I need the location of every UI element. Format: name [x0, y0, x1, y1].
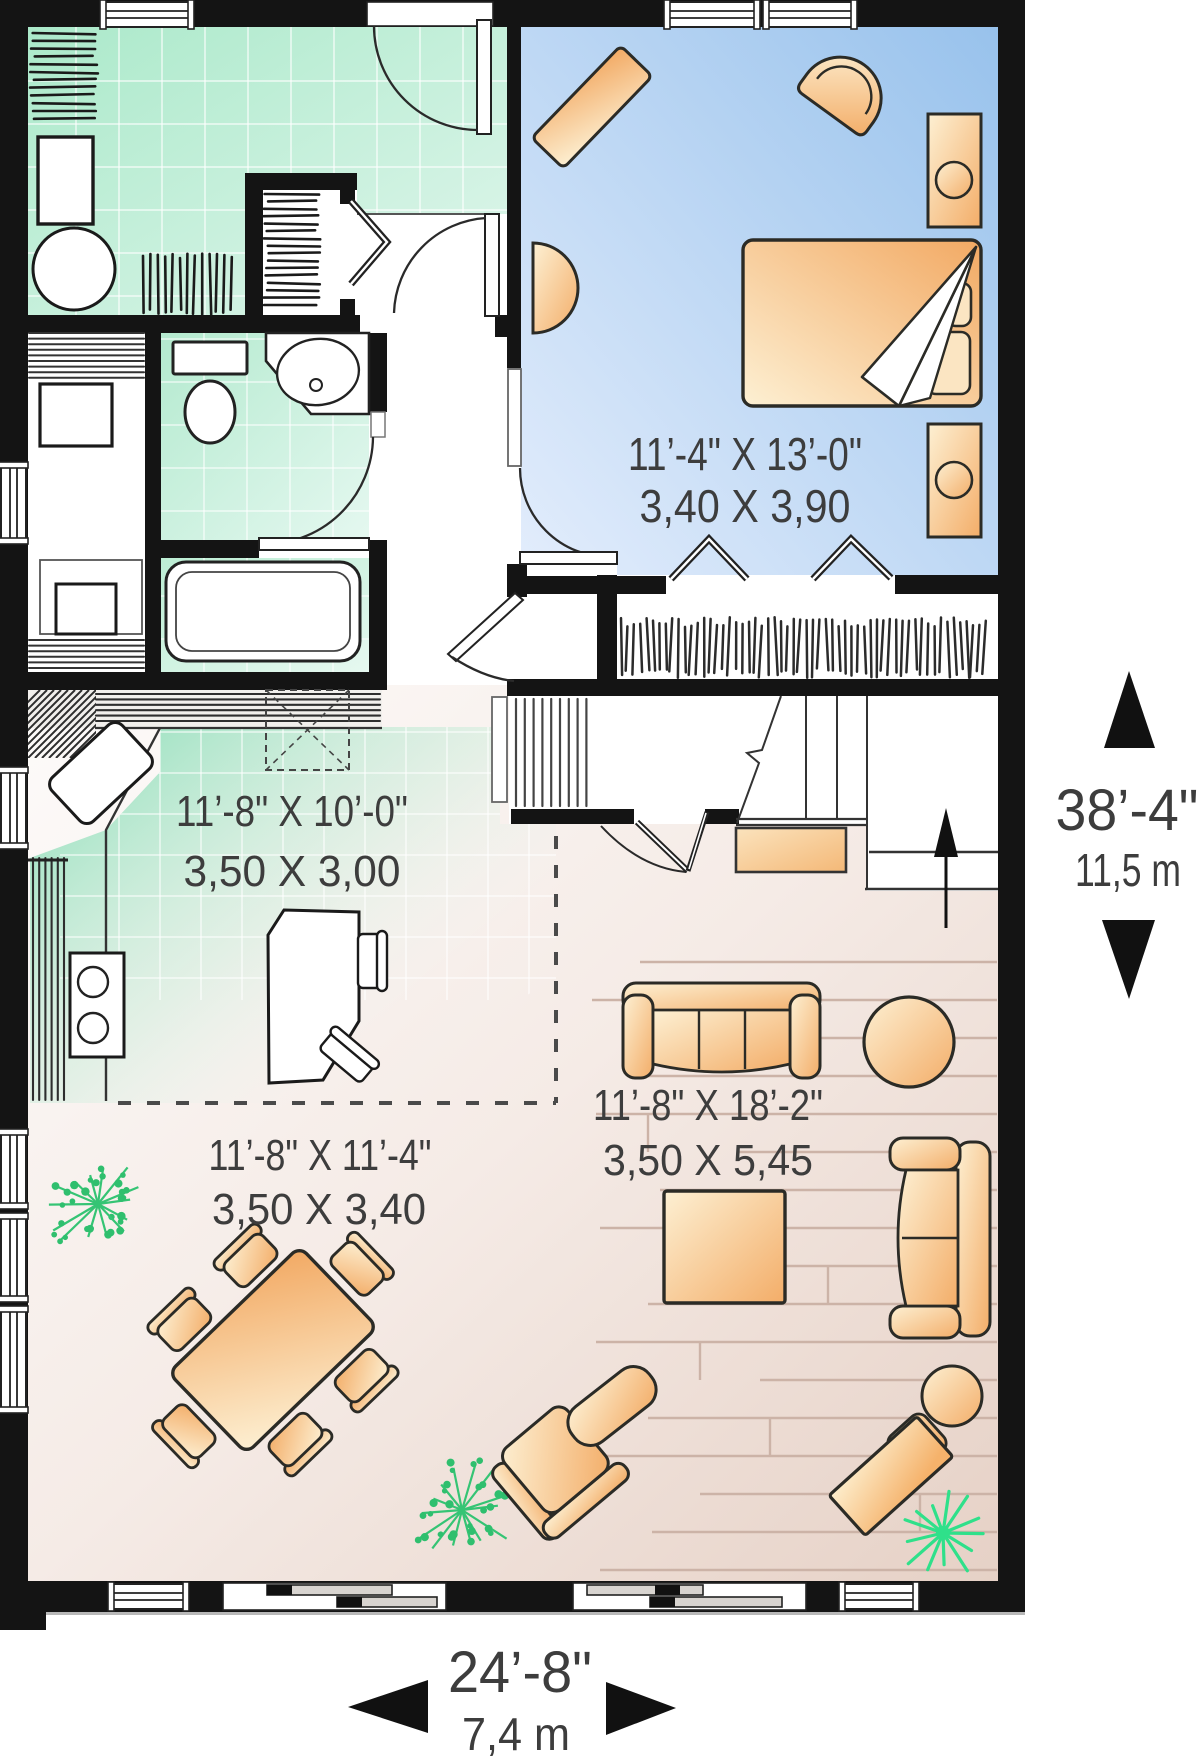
svg-text:3,50 X 3,40: 3,50 X 3,40	[212, 1185, 426, 1234]
svg-text:3,40 X 3,90: 3,40 X 3,90	[640, 480, 851, 532]
svg-text:24’-8": 24’-8"	[448, 1640, 592, 1705]
svg-text:38’-4": 38’-4"	[1056, 778, 1199, 843]
svg-text:11’-8" X 18’-2": 11’-8" X 18’-2"	[593, 1081, 823, 1130]
svg-text:11,5 m: 11,5 m	[1075, 844, 1181, 896]
svg-text:11’-8" X 11’-4": 11’-8" X 11’-4"	[209, 1131, 432, 1180]
svg-text:3,50 X 5,45: 3,50 X 5,45	[603, 1136, 813, 1185]
svg-text:3,50 X 3,00: 3,50 X 3,00	[184, 847, 401, 896]
svg-text:7,4 m: 7,4 m	[462, 1708, 570, 1760]
svg-text:11’-4" X 13’-0": 11’-4" X 13’-0"	[628, 428, 862, 480]
svg-text:11’-8" X 10’-0": 11’-8" X 10’-0"	[176, 787, 408, 836]
